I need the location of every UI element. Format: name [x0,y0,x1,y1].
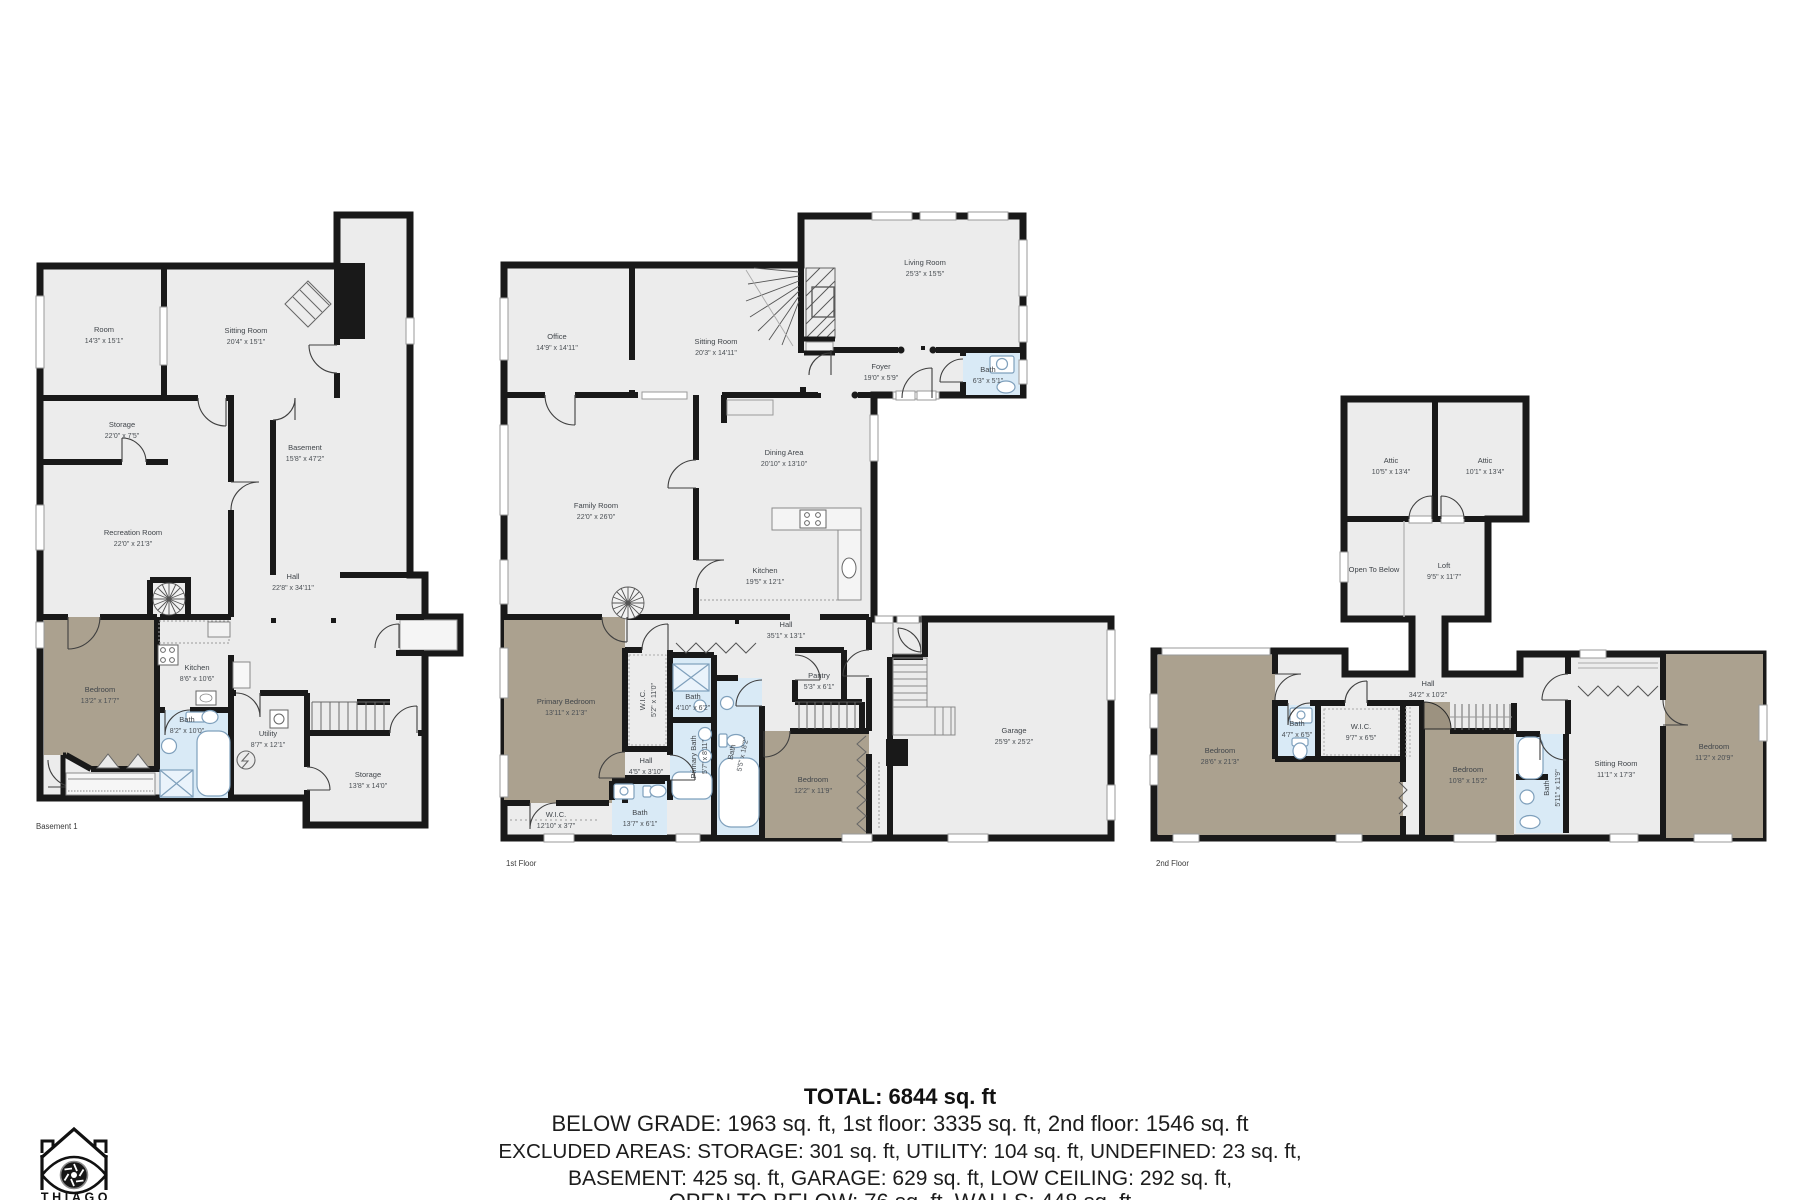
svg-text:Bedroom: Bedroom [85,685,115,694]
svg-text:Bath: Bath [980,365,995,374]
svg-text:BASEMENT: 425 sq. ft, GARAGE:: BASEMENT: 425 sq. ft, GARAGE: 629 sq. ft… [568,1167,1232,1190]
svg-text:Bath: Bath [179,715,194,724]
svg-text:13'7" x 6'1": 13'7" x 6'1" [623,821,658,828]
svg-text:BELOW GRADE: 1963 sq. ft, 1st: BELOW GRADE: 1963 sq. ft, 1st floor: 333… [551,1111,1248,1136]
svg-text:Garage: Garage [1001,726,1026,735]
svg-text:8'2" x 10'0": 8'2" x 10'0" [170,728,205,735]
svg-text:4'7" x 6'5": 4'7" x 6'5" [1282,732,1313,739]
svg-text:25'3" x 15'5": 25'3" x 15'5" [906,271,945,278]
svg-text:9'7" x 6'5": 9'7" x 6'5" [1346,735,1377,742]
svg-text:Storage: Storage [109,420,135,429]
svg-text:9'5" x 11'7": 9'5" x 11'7" [1427,574,1461,581]
svg-text:Bedroom: Bedroom [1453,765,1483,774]
svg-text:Primary Bedroom: Primary Bedroom [537,697,595,706]
svg-text:Hall: Hall [1422,679,1435,688]
svg-text:13'11" x 21'3": 13'11" x 21'3" [545,710,587,717]
svg-text:4'5" x 3'10": 4'5" x 3'10" [629,769,664,776]
svg-text:13'8" x 14'0": 13'8" x 14'0" [349,783,388,790]
svg-text:6'3" x 5'1": 6'3" x 5'1" [973,378,1004,385]
svg-text:25'9" x 25'2": 25'9" x 25'2" [995,739,1034,746]
svg-text:W.I.C.: W.I.C. [546,810,566,819]
svg-text:10'8" x 15'2": 10'8" x 15'2" [1449,778,1488,785]
svg-text:Room: Room [94,325,114,334]
svg-text:EXCLUDED AREAS: STORAGE: 301 s: EXCLUDED AREAS: STORAGE: 301 sq. ft, UTI… [498,1140,1301,1163]
svg-text:19'5" x 12'1": 19'5" x 12'1" [746,579,785,586]
svg-text:Bedroom: Bedroom [798,775,828,784]
svg-text:Office: Office [547,332,566,341]
svg-text:12'2" x 11'9": 12'2" x 11'9" [794,788,832,795]
svg-text:14'9" x 14'11": 14'9" x 14'11" [536,345,578,352]
svg-text:15'8" x 47'2": 15'8" x 47'2" [286,456,325,463]
svg-text:W.I.C.: W.I.C. [638,690,647,710]
svg-text:2nd Floor: 2nd Floor [1156,859,1189,868]
svg-text:5'2" x 11'0": 5'2" x 11'0" [651,682,658,716]
svg-text:Pantry: Pantry [808,671,830,680]
svg-text:Bath: Bath [632,808,647,817]
svg-text:8'6" x 10'6": 8'6" x 10'6" [180,676,215,683]
svg-text:Basement 1: Basement 1 [36,822,78,831]
svg-text:8'7" x 12'1": 8'7" x 12'1" [251,742,286,749]
svg-text:Utility: Utility [259,729,278,738]
svg-text:THIAGO: THIAGO [41,1191,111,1200]
svg-text:20'3" x 14'11": 20'3" x 14'11" [695,350,737,357]
svg-text:Primary Bath: Primary Bath [689,735,698,778]
svg-text:Sitting Room: Sitting Room [225,326,268,335]
svg-text:Bath: Bath [1542,780,1551,795]
svg-text:20'10" x 13'10": 20'10" x 13'10" [761,461,808,468]
svg-text:5'3" x 6'1": 5'3" x 6'1" [804,684,835,691]
svg-text:Attic: Attic [1384,456,1399,465]
svg-text:22'0" x 7'5": 22'0" x 7'5" [105,433,140,440]
svg-text:Recreation Room: Recreation Room [104,528,162,537]
svg-text:5'11" x 11'9": 5'11" x 11'9" [1555,769,1562,807]
svg-text:Storage: Storage [355,770,381,779]
svg-text:Bedroom: Bedroom [1699,742,1729,751]
svg-text:Family Room: Family Room [574,501,618,510]
svg-text:20'4" x 15'1": 20'4" x 15'1" [227,339,266,346]
svg-text:Foyer: Foyer [871,362,891,371]
svg-text:Open To Below: Open To Below [1349,565,1400,574]
svg-text:TOTAL: 6844 sq. ft: TOTAL: 6844 sq. ft [804,1084,997,1109]
svg-text:1st Floor: 1st Floor [506,859,537,868]
svg-text:14'3" x 15'1": 14'3" x 15'1" [85,338,124,345]
svg-text:Sitting Room: Sitting Room [1595,759,1638,768]
svg-text:Hall: Hall [780,620,793,629]
svg-text:Kitchen: Kitchen [752,566,777,575]
svg-text:Bedroom: Bedroom [1205,746,1235,755]
svg-text:Hall: Hall [640,756,653,765]
svg-text:OPEN TO BELOW: 76 sq. ft, WALL: OPEN TO BELOW: 76 sq. ft, WALLS: 448 sq.… [669,1189,1132,1200]
svg-text:Bath: Bath [685,692,700,701]
svg-text:Bath: Bath [1289,719,1304,728]
svg-text:Living Room: Living Room [904,258,946,267]
svg-text:22'0" x 21'3": 22'0" x 21'3" [114,541,153,548]
svg-text:19'0" x 5'9": 19'0" x 5'9" [864,375,899,382]
svg-text:10'1" x 13'4": 10'1" x 13'4" [1466,469,1505,476]
svg-text:Basement: Basement [288,443,323,452]
svg-text:22'0" x 26'0": 22'0" x 26'0" [577,514,616,521]
svg-text:35'1" x 13'1": 35'1" x 13'1" [767,633,806,640]
svg-text:12'10" x 3'7": 12'10" x 3'7" [537,823,576,830]
svg-text:W.I.C.: W.I.C. [1351,722,1371,731]
svg-text:11'1" x 17'3": 11'1" x 17'3" [1597,772,1635,779]
svg-text:Sitting Room: Sitting Room [695,337,738,346]
svg-text:Loft: Loft [1438,561,1451,570]
svg-text:Dining Area: Dining Area [765,448,805,457]
svg-text:10'5" x 13'4": 10'5" x 13'4" [1372,469,1411,476]
svg-text:5'7" x 8'11": 5'7" x 8'11" [702,739,709,773]
svg-text:13'2" x 17'7": 13'2" x 17'7" [81,698,120,705]
svg-text:28'6" x 21'3": 28'6" x 21'3" [1201,759,1240,766]
svg-text:Attic: Attic [1478,456,1493,465]
svg-text:Kitchen: Kitchen [184,663,209,672]
svg-text:22'8" x 34'11": 22'8" x 34'11" [272,585,314,592]
svg-text:4'10" x 6'2": 4'10" x 6'2" [676,705,711,712]
svg-text:34'2" x 10'2": 34'2" x 10'2" [1409,692,1448,699]
svg-text:Hall: Hall [287,572,300,581]
svg-text:11'2" x 20'9": 11'2" x 20'9" [1695,755,1733,762]
